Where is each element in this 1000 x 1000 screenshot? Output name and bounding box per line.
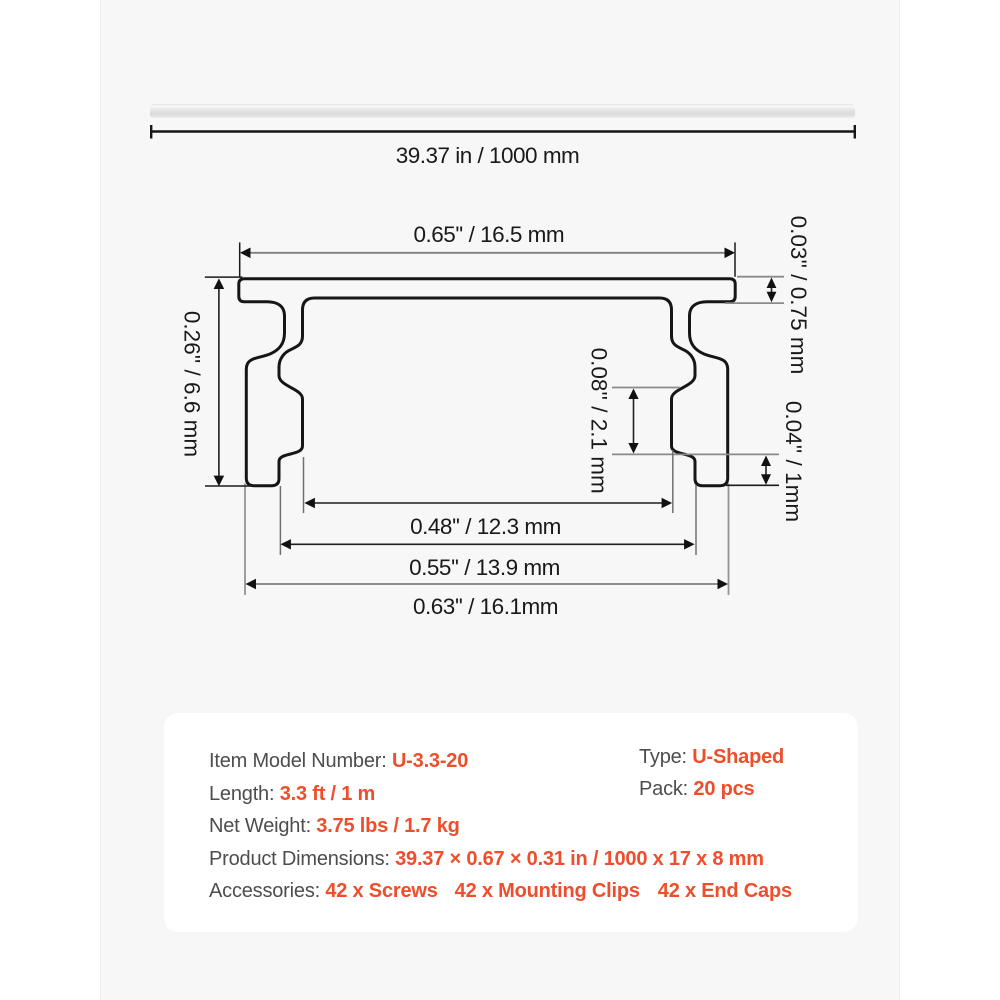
svg-text:0.03'' / 0.75 mm: 0.03'' / 0.75 mm	[786, 216, 811, 375]
svg-text:0.48'' / 12.3 mm: 0.48'' / 12.3 mm	[410, 514, 561, 539]
svg-text:0.08'' / 2.1 mm: 0.08'' / 2.1 mm	[587, 348, 612, 494]
svg-text:0.26'' / 6.6 mm: 0.26'' / 6.6 mm	[180, 311, 205, 457]
svg-text:0.04'' / 1mm: 0.04'' / 1mm	[781, 401, 806, 522]
svg-text:0.65'' / 16.5 mm: 0.65'' / 16.5 mm	[413, 222, 564, 247]
svg-text:0.63'' / 16.1mm: 0.63'' / 16.1mm	[413, 594, 558, 619]
svg-text:39.37 in / 1000 mm: 39.37 in / 1000 mm	[396, 143, 580, 168]
svg-text:0.55'' / 13.9 mm: 0.55'' / 13.9 mm	[409, 555, 560, 580]
